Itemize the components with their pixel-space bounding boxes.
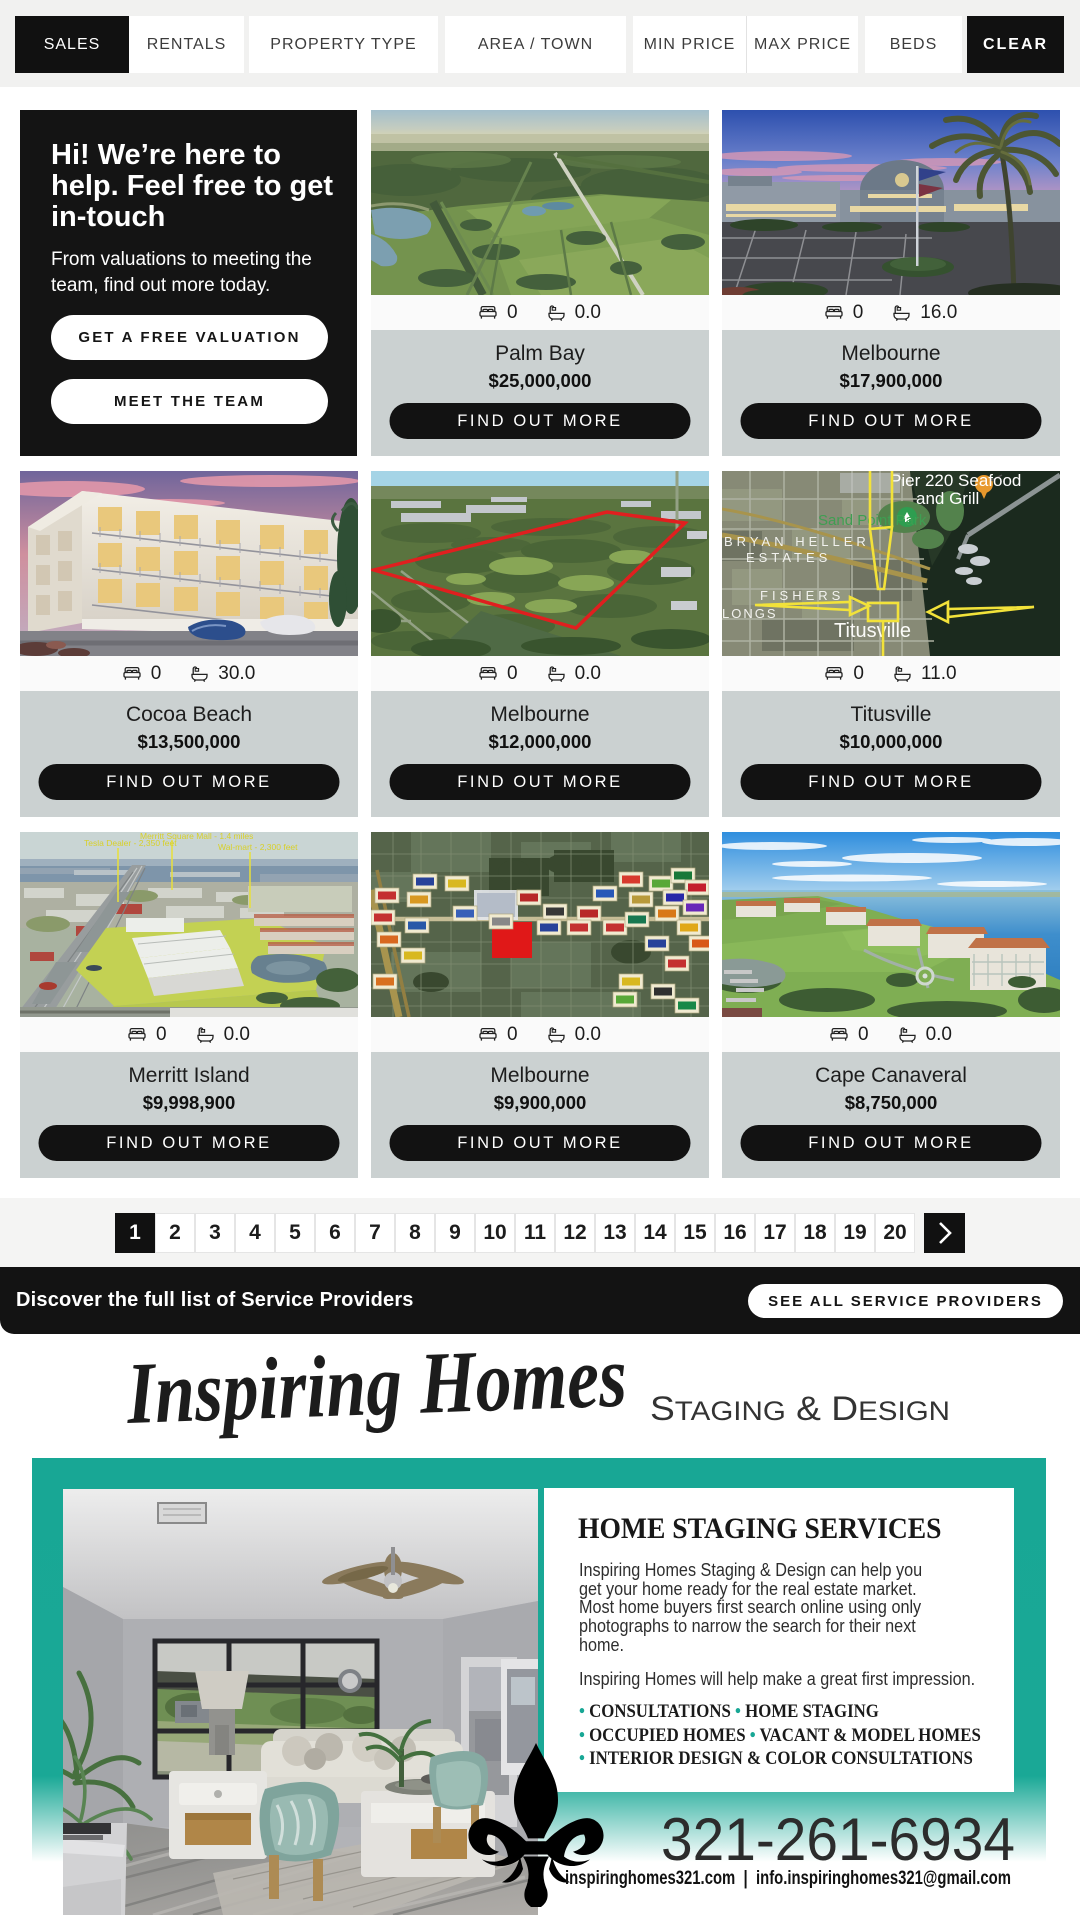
svg-text:LONGS: LONGS xyxy=(722,606,778,621)
svg-text:Sand Point Park: Sand Point Park xyxy=(818,512,927,529)
svg-text:Wal-mart - 2,300 feet: Wal-mart - 2,300 feet xyxy=(218,842,298,852)
svg-text:FISHERS: FISHERS xyxy=(760,588,844,603)
svg-text:inspiringhomes321.com | info: inspiringhomes321.com | info.inspiringho… xyxy=(565,1868,1011,1889)
svg-text:and Grill: and Grill xyxy=(916,489,979,508)
svg-text:BRYAN HELLER: BRYAN HELLER xyxy=(724,534,870,549)
svg-text:ESTATES: ESTATES xyxy=(746,550,831,565)
svg-text:Inspiring Homes: Inspiring Homes xyxy=(124,1340,628,1443)
svg-text:321-261-6934: 321-261-6934 xyxy=(661,1810,1015,1872)
svg-text:Titusville: Titusville xyxy=(834,620,911,642)
svg-text:Merritt Square Mall - 1.4 mile: Merritt Square Mall - 1.4 miles xyxy=(140,832,253,841)
svg-text:STAGING & DESIGN: STAGING & DESIGN xyxy=(650,1390,950,1428)
svg-text:Pier 220 Seafood: Pier 220 Seafood xyxy=(890,471,1021,490)
